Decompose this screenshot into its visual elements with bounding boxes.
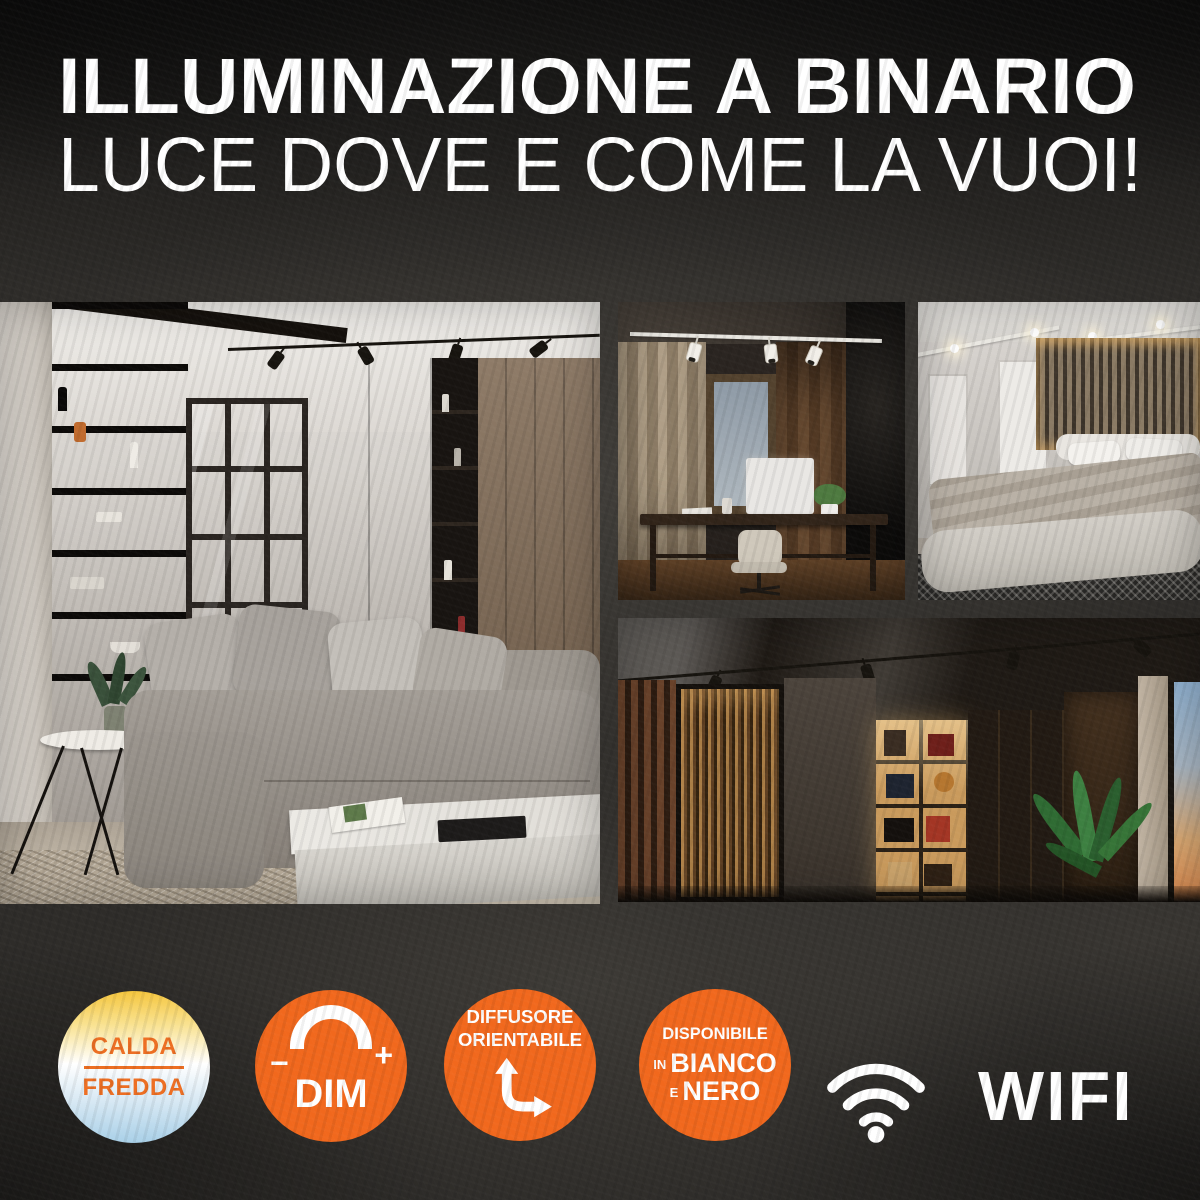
chair-column	[757, 573, 761, 589]
sofa-armrest	[124, 732, 264, 888]
fluted-glass-door	[676, 684, 784, 902]
sunset-window	[1168, 682, 1200, 902]
concrete-pillar	[1138, 676, 1168, 902]
product-banner: ILLUMINAZIONE A BINARIO LUCE DOVE E COME…	[0, 0, 1200, 1200]
badge-variants-line1: DISPONIBILE	[662, 1025, 767, 1044]
glowing-spotlight-icon	[1156, 320, 1165, 329]
photo-home-office	[618, 302, 905, 600]
book-spines	[888, 862, 912, 886]
badge-adjustable-line2: ORIENTABILE	[458, 1028, 582, 1051]
book-spines	[926, 816, 950, 842]
shelf-bottles	[58, 387, 67, 411]
book-spines	[884, 818, 914, 842]
badge-adjustable-diffuser: DIFFUSORE ORIENTABILE	[444, 989, 596, 1141]
curved-arrow-icon	[484, 1057, 556, 1119]
badge-variants-black: NERO	[682, 1076, 760, 1106]
shelf-bowl	[110, 642, 140, 653]
shelf-bottle	[130, 442, 138, 468]
book-spines	[886, 774, 914, 798]
niche-bottle	[454, 448, 461, 466]
headline: ILLUMINAZIONE A BINARIO LUCE DOVE E COME…	[0, 0, 1200, 240]
desk-leg	[650, 525, 656, 591]
shelf-dishes	[96, 512, 122, 522]
badge-variants-line3: ENERO	[670, 1077, 761, 1105]
pen-cup	[722, 498, 732, 514]
badge-dimmer: − + DIM	[255, 990, 407, 1142]
desk-top	[640, 514, 888, 525]
glowing-spotlight-icon	[950, 344, 959, 353]
slat-wall	[618, 680, 676, 902]
wifi-label: WIFI	[978, 1056, 1134, 1136]
headline-line1: ILLUMINAZIONE A BINARIO	[58, 41, 1136, 130]
badge-variants-e: E	[670, 1085, 679, 1100]
badge-variants-white: BIANCO	[670, 1048, 777, 1078]
office-chair-back	[738, 530, 782, 566]
badge-variants-in: IN	[653, 1057, 666, 1072]
book-spines	[884, 730, 906, 756]
magazine-photo	[343, 804, 367, 823]
gray-wall	[784, 678, 876, 902]
photo-bedroom	[918, 302, 1200, 600]
niche-bottle	[442, 394, 449, 412]
wifi-icon	[824, 1050, 928, 1144]
divider	[84, 1066, 184, 1069]
photo-library-hallway	[618, 618, 1200, 902]
decor-plate	[934, 772, 954, 792]
books-stack	[437, 816, 526, 843]
floor-shadow	[618, 886, 1200, 902]
spotlight-white-icon	[763, 343, 778, 363]
headline-line2: LUCE DOVE E COME LA VUOI!	[58, 122, 1142, 208]
photo-living-room	[0, 302, 600, 904]
badge-color-temperature: CALDA FREDDA	[58, 991, 210, 1143]
office-chair-seat	[731, 562, 787, 573]
niche-bottle	[444, 560, 452, 580]
desk-plant	[814, 484, 846, 506]
door	[928, 374, 968, 486]
badge-dimmer-label: DIM	[255, 1072, 407, 1117]
dimmer-arc-icon	[290, 1005, 372, 1049]
plus-icon: +	[374, 1039, 393, 1071]
glowing-spotlight-icon	[1030, 328, 1039, 337]
book-spines	[928, 734, 954, 756]
monitor	[746, 458, 814, 514]
shelf-vase	[74, 422, 86, 442]
desk-leg	[870, 525, 876, 591]
shelf-glasses	[70, 577, 104, 589]
badge-color-temperature-cool-label: FREDDA	[83, 1074, 186, 1102]
concrete-column	[0, 302, 52, 904]
book-spines	[924, 864, 952, 886]
badge-color-temperature-warm-label: CALDA	[91, 1033, 178, 1061]
badge-color-variants: DISPONIBILE INBIANCO ENERO	[639, 989, 791, 1141]
badge-variants-line2: INBIANCO	[653, 1049, 777, 1077]
badge-adjustable-line1: DIFFUSORE	[458, 1005, 582, 1028]
